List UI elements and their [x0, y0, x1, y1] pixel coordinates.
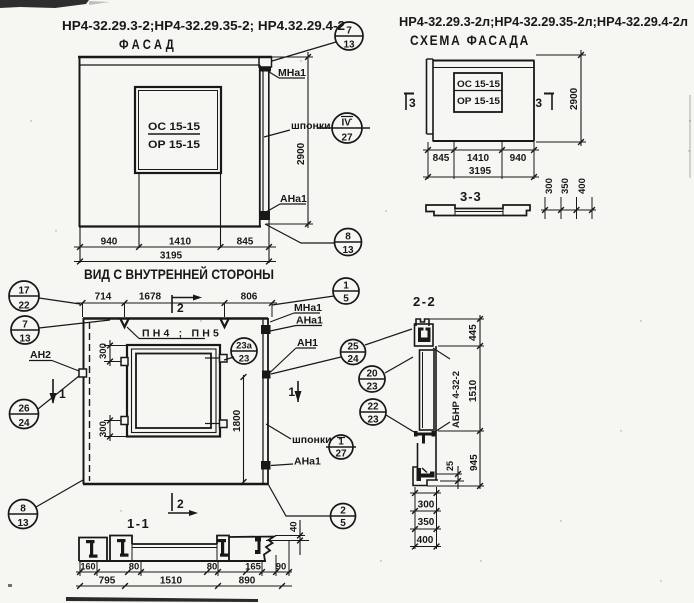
svg-text:80: 80	[129, 562, 140, 573]
svg-text:1: 1	[343, 281, 349, 292]
svg-text:165: 165	[245, 562, 262, 573]
svg-text:НР4-32.29.3-2л;НР4-32.29.35-2л: НР4-32.29.3-2л;НР4-32.29.35-2л;НР4-32.29…	[399, 15, 688, 29]
svg-text:1-1: 1-1	[127, 516, 150, 531]
svg-text:1: 1	[338, 437, 344, 448]
svg-text:1410: 1410	[169, 237, 192, 248]
svg-text:ФАСАД: ФАСАД	[119, 37, 177, 52]
svg-text:845: 845	[237, 237, 254, 248]
svg-text:ОР 15-15: ОР 15-15	[457, 96, 501, 107]
svg-text:ОР 15-15: ОР 15-15	[148, 139, 200, 151]
svg-text:300: 300	[98, 343, 109, 359]
svg-text:27: 27	[341, 133, 353, 144]
svg-text:300: 300	[418, 500, 435, 511]
svg-text:НР4-32.29.3-2;НР4-32.29.35-2;: НР4-32.29.3-2;НР4-32.29.35-2; НР4.32.29.…	[62, 19, 345, 33]
svg-text:2900: 2900	[296, 142, 307, 165]
svg-text:90: 90	[276, 562, 287, 573]
svg-text:22: 22	[18, 301, 30, 312]
svg-text:1510: 1510	[468, 379, 479, 402]
svg-text:17: 17	[18, 286, 30, 297]
svg-text:1800: 1800	[232, 409, 243, 432]
svg-text:3195: 3195	[469, 166, 492, 177]
svg-text:890: 890	[239, 576, 256, 587]
svg-text:2900: 2900	[569, 87, 580, 110]
svg-text:ІѴ: ІѴ	[342, 118, 354, 129]
svg-text:1510: 1510	[160, 576, 183, 587]
svg-text:445: 445	[468, 324, 479, 341]
svg-text:23: 23	[366, 382, 378, 393]
svg-text:940: 940	[510, 153, 527, 164]
svg-text:2: 2	[177, 497, 184, 511]
svg-text:13: 13	[19, 334, 31, 345]
svg-text:940: 940	[101, 237, 118, 248]
svg-text:СХЕМА ФАСАДА: СХЕМА ФАСАДА	[410, 33, 530, 48]
svg-text:806: 806	[241, 292, 258, 303]
svg-text:3: 3	[409, 96, 416, 110]
svg-text:3-3: 3-3	[460, 189, 482, 204]
svg-text:АНа1: АНа1	[280, 193, 307, 205]
svg-text:8: 8	[345, 232, 351, 243]
svg-text:ВИД С ВНУТРЕННЕЙ СТОРОНЫ: ВИД С ВНУТРЕННЕЙ СТОРОНЫ	[84, 265, 274, 282]
svg-text:23а: 23а	[236, 341, 253, 352]
svg-text:300: 300	[544, 178, 555, 194]
svg-text:160: 160	[80, 562, 95, 572]
svg-text:7: 7	[22, 320, 28, 331]
svg-text:26: 26	[18, 404, 30, 415]
svg-text:400: 400	[417, 535, 434, 546]
svg-text:25: 25	[445, 461, 455, 471]
svg-text:АНа1: АНа1	[294, 456, 321, 468]
svg-text:24: 24	[347, 354, 359, 365]
svg-text:1: 1	[288, 385, 295, 399]
svg-text:АН2: АН2	[30, 349, 51, 361]
svg-text:5: 5	[340, 518, 346, 529]
svg-text:300: 300	[98, 421, 109, 437]
svg-text:АН1: АН1	[297, 337, 318, 349]
svg-text:3: 3	[535, 96, 542, 110]
svg-text:24: 24	[18, 418, 30, 429]
svg-text:8: 8	[20, 504, 26, 515]
svg-text:ОС 15-15: ОС 15-15	[148, 121, 200, 133]
svg-text:7: 7	[346, 26, 352, 37]
svg-text:ОС 15-15: ОС 15-15	[457, 79, 501, 90]
svg-text:23: 23	[367, 415, 379, 426]
svg-text:2-2: 2-2	[413, 294, 436, 309]
svg-text:714: 714	[95, 292, 112, 303]
svg-text:845: 845	[433, 153, 450, 164]
svg-text:1678: 1678	[139, 292, 162, 303]
svg-text:795: 795	[99, 576, 116, 587]
svg-text:МНа1: МНа1	[278, 67, 306, 79]
svg-text:2: 2	[340, 506, 346, 517]
svg-text:1410: 1410	[467, 153, 490, 164]
svg-text:3195: 3195	[160, 251, 183, 262]
svg-text:шпонки: шпонки	[292, 434, 332, 446]
svg-text:13: 13	[343, 40, 355, 51]
svg-text:80: 80	[207, 562, 218, 573]
svg-text:945: 945	[469, 454, 480, 471]
svg-text:13: 13	[17, 518, 29, 529]
svg-text:МНа1: МНа1	[294, 302, 322, 314]
svg-text:25: 25	[347, 342, 359, 353]
svg-text:ПН4 ; ПН5: ПН4 ; ПН5	[142, 328, 222, 340]
svg-text:13: 13	[342, 245, 354, 256]
svg-text:23: 23	[239, 354, 250, 365]
svg-text:АНа1: АНа1	[296, 315, 323, 327]
svg-text:400: 400	[577, 178, 588, 194]
svg-text:20: 20	[366, 369, 378, 380]
svg-text:350: 350	[418, 517, 435, 528]
svg-text:АБНР 4-32-2: АБНР 4-32-2	[451, 371, 462, 428]
svg-text:27: 27	[335, 449, 347, 460]
svg-text:350: 350	[560, 178, 571, 194]
svg-text:40: 40	[289, 521, 300, 532]
svg-text:22: 22	[367, 402, 379, 413]
svg-text:5: 5	[343, 294, 349, 305]
svg-text:2: 2	[177, 301, 184, 315]
svg-text:шпонки: шпонки	[291, 120, 331, 132]
